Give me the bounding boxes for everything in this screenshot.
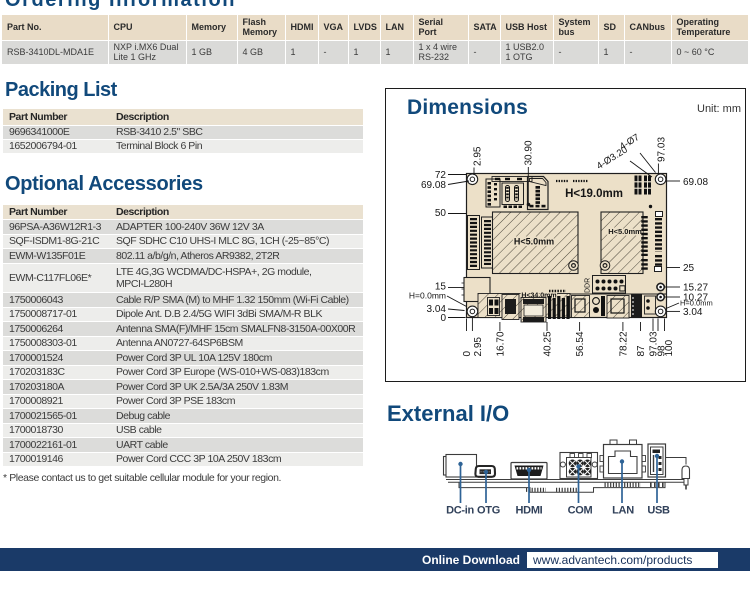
svg-text:DC-in: DC-in <box>446 505 474 517</box>
svg-text:OTG: OTG <box>477 505 500 517</box>
svg-text:USB: USB <box>647 505 670 517</box>
svg-text:HDMI: HDMI <box>516 505 543 517</box>
svg-text:COM: COM <box>568 505 593 517</box>
svg-text:LAN: LAN <box>612 505 634 517</box>
